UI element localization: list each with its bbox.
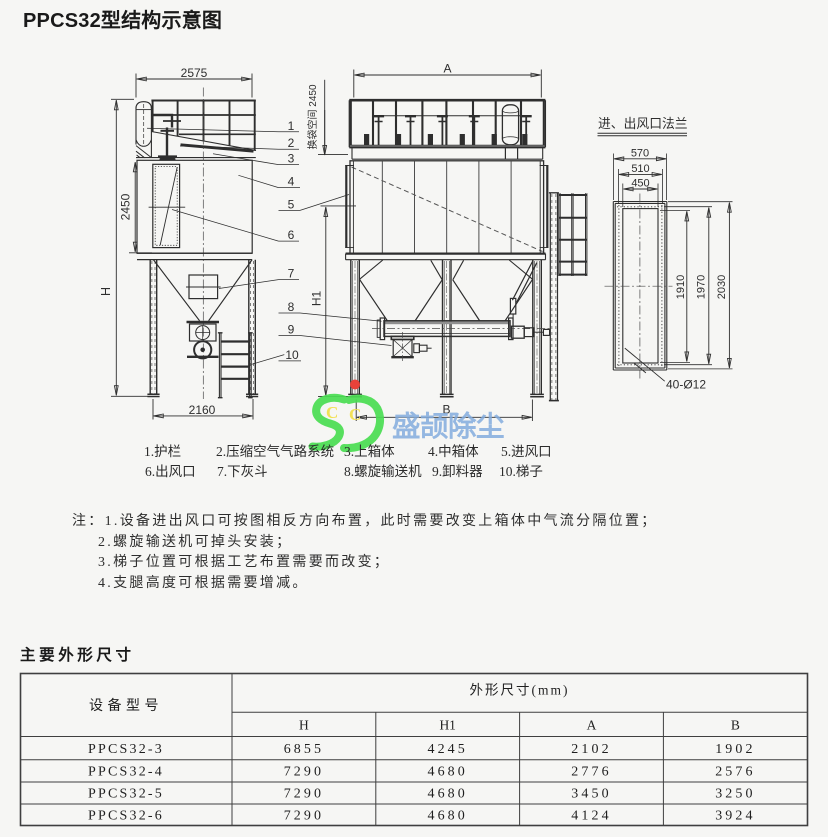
svg-text:1: 1: [288, 119, 295, 133]
svg-text:5: 5: [288, 197, 295, 211]
svg-text:1910: 1910: [675, 275, 687, 299]
svg-text:4680: 4680: [427, 809, 467, 824]
svg-text:进、出风口法兰: 进、出风口法兰: [598, 116, 688, 131]
svg-text:1902: 1902: [715, 742, 755, 757]
svg-text:盛颉除尘: 盛颉除尘: [392, 410, 504, 443]
svg-text:9: 9: [288, 323, 295, 337]
svg-text:40-Ø12: 40-Ø12: [666, 378, 706, 392]
svg-text:8: 8: [288, 300, 295, 314]
svg-text:H1: H1: [439, 718, 456, 733]
svg-text:2575: 2575: [181, 66, 208, 80]
svg-text:A: A: [443, 62, 451, 76]
svg-text:3250: 3250: [715, 787, 755, 802]
svg-text:H: H: [299, 718, 309, 733]
svg-text:PPCS32-5: PPCS32-5: [88, 787, 164, 802]
svg-text:4124: 4124: [571, 809, 611, 824]
svg-text:7290: 7290: [284, 787, 324, 802]
svg-text:A: A: [587, 718, 597, 733]
svg-text:4680: 4680: [427, 765, 467, 780]
svg-text:2776: 2776: [571, 765, 611, 780]
svg-text:外形尺寸(mm): 外形尺寸(mm): [470, 683, 570, 698]
svg-text:设备型号: 设备型号: [89, 697, 163, 714]
svg-text:3: 3: [288, 152, 295, 166]
svg-text:C: C: [326, 403, 338, 422]
svg-text:2030: 2030: [716, 275, 728, 299]
svg-text:1970: 1970: [696, 275, 708, 299]
svg-text:6855: 6855: [284, 742, 324, 757]
svg-text:PPCS32-6: PPCS32-6: [88, 809, 164, 824]
svg-text:PPCS32-4: PPCS32-4: [88, 765, 164, 780]
svg-text:6: 6: [288, 228, 295, 242]
svg-text:4680: 4680: [427, 787, 467, 802]
svg-text:B: B: [731, 718, 740, 733]
svg-text:换袋空间 2450: 换袋空间 2450: [306, 84, 319, 149]
svg-text:10: 10: [285, 348, 299, 362]
svg-text:4: 4: [288, 175, 295, 189]
svg-text:7290: 7290: [284, 809, 324, 824]
svg-text:2160: 2160: [189, 403, 216, 417]
svg-text:H1: H1: [310, 291, 324, 307]
svg-text:7290: 7290: [284, 765, 324, 780]
svg-text:2102: 2102: [571, 742, 611, 757]
svg-text:570: 570: [631, 147, 649, 159]
svg-text:2576: 2576: [715, 765, 755, 780]
svg-text:C: C: [349, 405, 361, 424]
svg-text:2450: 2450: [119, 193, 133, 220]
svg-text:H: H: [99, 287, 113, 296]
svg-text:3450: 3450: [571, 787, 611, 802]
svg-text:4245: 4245: [427, 742, 467, 757]
svg-text:PPCS32-3: PPCS32-3: [88, 742, 164, 757]
svg-text:2: 2: [288, 136, 295, 150]
svg-text:450: 450: [631, 178, 649, 190]
svg-text:7: 7: [288, 267, 295, 281]
svg-text:3924: 3924: [715, 809, 755, 824]
svg-text:510: 510: [631, 163, 649, 175]
